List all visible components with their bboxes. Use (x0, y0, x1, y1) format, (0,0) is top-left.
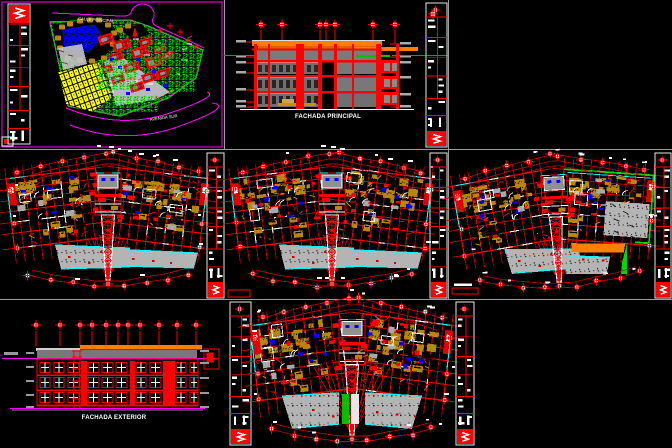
svg-text:FACHADA PRINCIPAL: FACHADA PRINCIPAL (295, 114, 361, 120)
svg-text:FACHADA EXTERIOR: FACHADA EXTERIOR (82, 415, 147, 421)
